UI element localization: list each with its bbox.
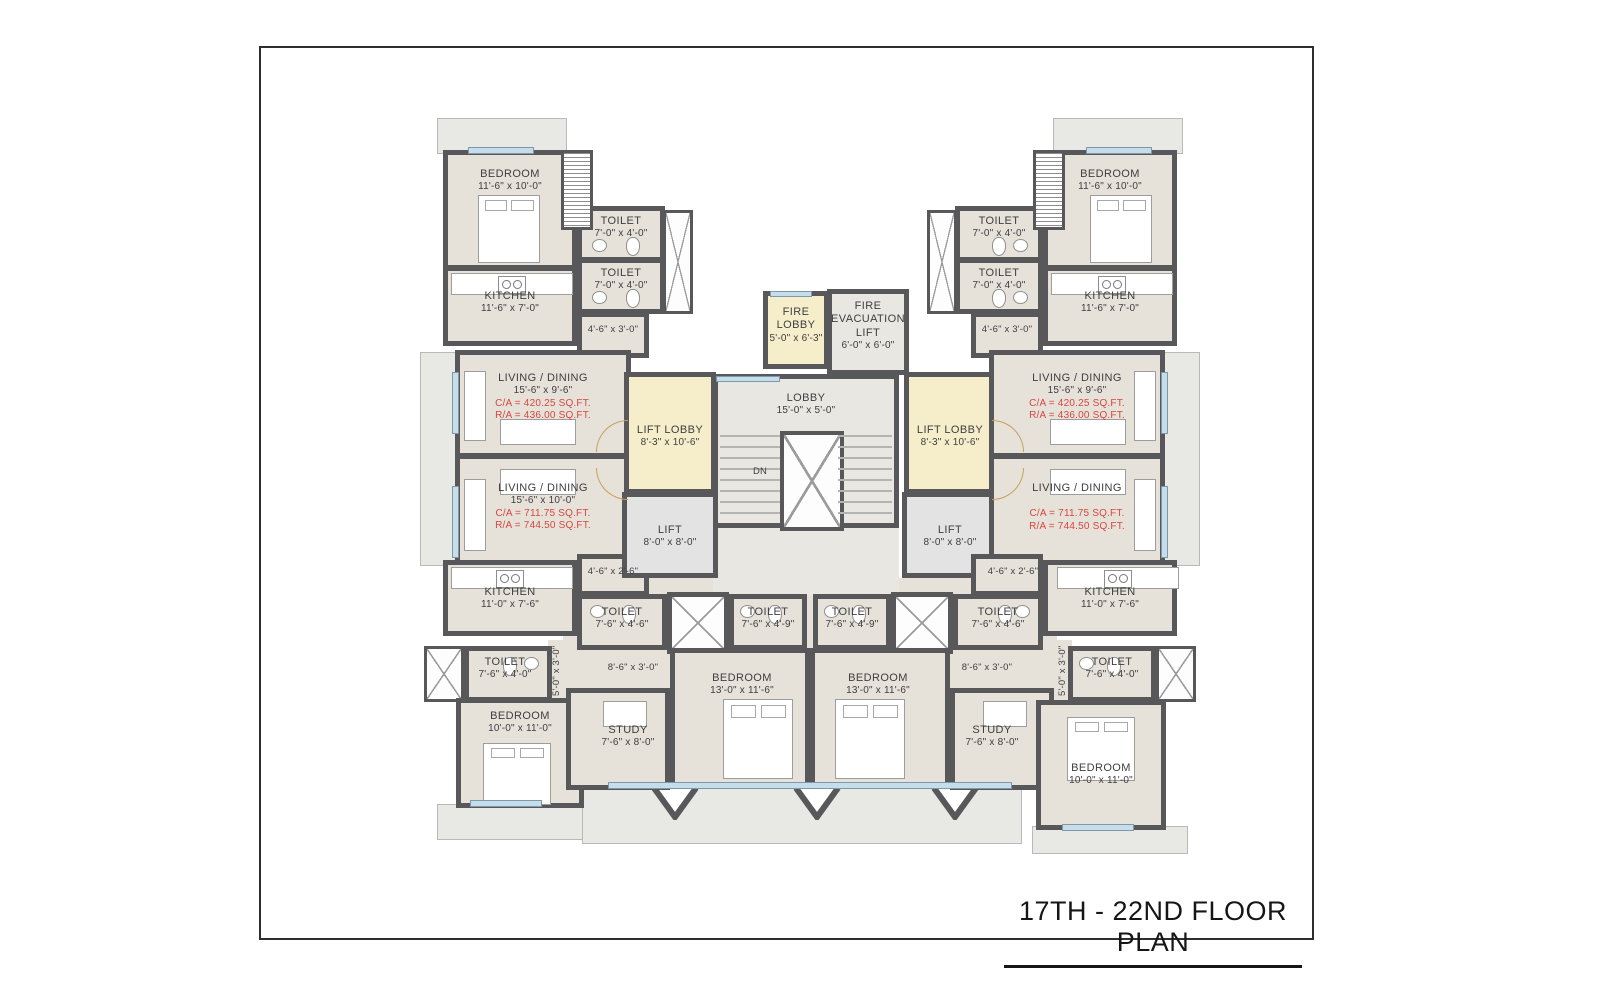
label-kitchen-bottom-left: KITCHEN 11'-0" x 7'-6" (443, 586, 577, 612)
label-bedroom-center-left: BEDROOM 13'-0" x 11'-6" (672, 672, 812, 698)
rera-area: R/A = 744.50 SQ.FT. (989, 521, 1165, 533)
room-dim: 7'-6" x 4'-9" (725, 619, 811, 631)
room-name: TOILET (577, 606, 667, 619)
room-dim: 8'-3" x 10'-6" (624, 437, 716, 449)
bed-icon (1090, 195, 1152, 263)
label-living-right-2: LIVING / DINING C/A = 711.75 SQ.FT. R/A … (989, 482, 1165, 533)
room-name: BEDROOM (456, 710, 584, 723)
room-name: TOILET (809, 606, 895, 619)
carpet-area: C/A = 711.75 SQ.FT. (455, 508, 631, 520)
stair-void-icon (780, 431, 844, 531)
label-toilet-center-left-1: TOILET 7'-6" x 4'-6" (577, 606, 667, 632)
label-kitchen-top-left: KITCHEN 11'-6" x 7'-0" (443, 290, 577, 316)
window-icon (1086, 147, 1152, 154)
label-toilet-center-right-1: TOILET 7'-6" x 4'-9" (809, 606, 895, 632)
room-name: KITCHEN (443, 290, 577, 303)
room-name: BEDROOM (808, 672, 948, 685)
label-study-right: STUDY 7'-6" x 8'-0" (940, 724, 1044, 750)
window-icon (1062, 824, 1134, 831)
stairs-direction: DN (742, 466, 778, 478)
bed-icon (483, 743, 551, 805)
label-passage-top-right: 4'-6" x 3'-0" (961, 324, 1053, 336)
balcony-pier-icon (651, 786, 699, 820)
spacer (989, 495, 1165, 508)
room-name: KITCHEN (1043, 586, 1177, 599)
room-dim: 7'-6" x 4'-0" (455, 669, 555, 681)
label-corridor-left: 8'-6" x 3'-0" (583, 662, 683, 674)
window-icon (608, 782, 1012, 789)
label-living-left-2: LIVING / DINING 15'-6" x 10'-0" C/A = 71… (455, 482, 631, 532)
room-dim: 7'-0" x 4'-0" (955, 228, 1043, 240)
room-name: LIVING / DINING (455, 372, 631, 385)
room-name: TOILET (577, 215, 665, 228)
room-name: LIVING / DINING (989, 482, 1165, 495)
label-toilet-center-right-2: TOILET 7'-6" x 4'-6" (953, 606, 1043, 632)
label-passage-vertical-left: 5'-0" x 3'-0" (551, 626, 563, 716)
stair-steps-icon (838, 435, 892, 521)
room-dim: 7'-6" x 4'-6" (577, 619, 667, 631)
label-lift-lobby-right: LIFT LOBBY 8'-3" x 10'-6" (904, 424, 996, 450)
room-dim: 7'-0" x 4'-0" (955, 280, 1043, 292)
room-name: TOILET (455, 656, 555, 669)
label-kitchen-bottom-right: KITCHEN 11'-0" x 7'-6" (1043, 586, 1177, 612)
room-name: LIVING / DINING (455, 482, 631, 495)
room-name: KITCHEN (443, 586, 577, 599)
room-name: LIFT LOBBY (904, 424, 996, 437)
table-icon (500, 419, 576, 445)
lobby-landing-floor (713, 524, 899, 596)
label-toilet-top-left-1: TOILET 7'-0" x 4'-0" (577, 215, 665, 241)
label-passage-left-2: 4'-6" x 2'-6" (567, 566, 659, 578)
room-dim: 11'-6" x 10'-0" (443, 181, 577, 193)
room-name: STUDY (940, 724, 1044, 737)
balcony-bottom-left (437, 804, 587, 840)
window-icon (716, 376, 780, 382)
room-name: KITCHEN (1043, 290, 1177, 303)
room-name: BEDROOM (1036, 762, 1166, 775)
bed-icon (835, 699, 905, 779)
floor-plan-page: BEDROOM 11'-6" x 10'-0" TOILET 7'-0" x 4… (0, 0, 1599, 981)
room-dim: 15'-6" x 9'-6" (989, 385, 1165, 397)
room-dim: 5'-0" x 6'-3" (763, 333, 829, 345)
plan-title-text: 17TH - 22ND FLOOR PLAN (1019, 896, 1287, 957)
room-dim: 11'-6" x 10'-0" (1043, 181, 1177, 193)
stair-steps-icon (720, 435, 780, 521)
room-name: LOBBY (713, 392, 899, 405)
room-name: TOILET (1062, 656, 1162, 669)
room-name: TOILET (955, 215, 1043, 228)
rera-area: R/A = 744.50 SQ.FT. (455, 520, 631, 532)
room-dim: 13'-0" x 11'-6" (808, 685, 948, 697)
balcony-pier-icon (931, 786, 979, 820)
label-kitchen-top-right: KITCHEN 11'-6" x 7'-0" (1043, 290, 1177, 316)
balcony-pier-icon (793, 786, 841, 820)
label-living-left-1: LIVING / DINING 15'-6" x 9'-6" C/A = 420… (455, 372, 631, 422)
room-dim: 7'-0" x 4'-0" (577, 280, 665, 292)
room-dim: 4'-6" x 3'-0" (961, 324, 1053, 336)
label-bedroom-top-right: BEDROOM 11'-6" x 10'-0" (1043, 168, 1177, 194)
room-bedroom-center-right (810, 648, 950, 788)
bed-icon (478, 195, 540, 263)
label-toilet-bottom-left: TOILET 7'-6" x 4'-0" (455, 656, 555, 682)
rera-area: R/A = 436.00 SQ.FT. (455, 410, 631, 422)
room-dim: 8'-6" x 3'-0" (583, 662, 683, 674)
bed-icon (723, 699, 793, 779)
label-bedroom-bottom-right: BEDROOM 10'-0" x 11'-0" (1036, 762, 1166, 788)
room-dim: 11'-0" x 7'-6" (443, 599, 577, 611)
room-dim: 8'-6" x 3'-0" (937, 662, 1037, 674)
room-dim: 5'-0" x 3'-0" (551, 626, 563, 716)
room-dim: 8'-0" x 8'-0" (622, 537, 718, 549)
room-dim: 7'-6" x 4'-6" (953, 619, 1043, 631)
label-living-right-1: LIVING / DINING 15'-6" x 9'-6" C/A = 420… (989, 372, 1165, 422)
label-lobby: LOBBY 15'-0" x 5'-0" (713, 392, 899, 418)
table-icon (1050, 419, 1126, 445)
room-dim: 7'-6" x 4'-9" (809, 619, 895, 631)
room-dim: 11'-0" x 7'-6" (1043, 599, 1177, 611)
room-dim: 7'-0" x 4'-0" (577, 228, 665, 240)
room-dim: 7'-6" x 4'-0" (1062, 669, 1162, 681)
room-dim: 15'-6" x 10'-0" (455, 495, 631, 507)
vent-shaft-icon (927, 210, 957, 314)
room-name: STUDY (576, 724, 680, 737)
label-toilet-top-right-1: TOILET 7'-0" x 4'-0" (955, 215, 1043, 241)
room-name: LIVING / DINING (989, 372, 1165, 385)
label-toilet-top-right-2: TOILET 7'-0" x 4'-0" (955, 267, 1043, 293)
label-lift-left: LIFT 8'-0" x 8'-0" (622, 524, 718, 550)
room-dim: 6'-0" x 6'-0" (829, 340, 907, 352)
label-toilet-center-left-2: TOILET 7'-6" x 4'-9" (725, 606, 811, 632)
room-name: BEDROOM (443, 168, 577, 181)
window-icon (770, 291, 812, 297)
room-name: BEDROOM (672, 672, 812, 685)
shaft-icon (667, 592, 729, 654)
carpet-area: C/A = 420.25 SQ.FT. (989, 398, 1165, 410)
room-dim: 8'-0" x 8'-0" (902, 537, 998, 549)
label-lift-right: LIFT 8'-0" x 8'-0" (902, 524, 998, 550)
room-dim: 11'-6" x 7'-0" (1043, 303, 1177, 315)
room-dim: 4'-6" x 2'-6" (967, 566, 1059, 578)
label-fire-lobby: FIRE LOBBY 5'-0" x 6'-3" (763, 306, 829, 345)
shaft-icon (1156, 646, 1196, 702)
room-bedroom-center-left (670, 648, 810, 788)
label-study-left: STUDY 7'-6" x 8'-0" (576, 724, 680, 750)
room-name: TOILET (577, 267, 665, 280)
balcony-right (1164, 352, 1200, 566)
label-passage-right-2: 4'-6" x 2'-6" (967, 566, 1059, 578)
carpet-area: C/A = 420.25 SQ.FT. (455, 398, 631, 410)
room-dim: 11'-6" x 7'-0" (443, 303, 577, 315)
room-dim: 15'-6" x 9'-6" (455, 385, 631, 397)
room-name: BEDROOM (1043, 168, 1177, 181)
plan-title: 17TH - 22ND FLOOR PLAN (1004, 896, 1302, 968)
carpet-area: C/A = 711.75 SQ.FT. (989, 508, 1165, 520)
room-name: FIRE LOBBY (763, 306, 829, 333)
label-bedroom-center-right: BEDROOM 13'-0" x 11'-6" (808, 672, 948, 698)
room-name: TOILET (953, 606, 1043, 619)
balcony-left (420, 352, 456, 566)
room-dim: 7'-6" x 8'-0" (940, 737, 1044, 749)
room-dim: 10'-0" x 11'-0" (1036, 775, 1166, 787)
room-name: FIRE EVACUATION LIFT (829, 300, 907, 340)
label-corridor-right: 8'-6" x 3'-0" (937, 662, 1037, 674)
label-lift-lobby-left: LIFT LOBBY 8'-3" x 10'-6" (624, 424, 716, 450)
label-passage-top-left: 4'-6" x 3'-0" (567, 324, 659, 336)
room-dim: 15'-0" x 5'-0" (713, 405, 899, 417)
room-dim: 8'-3" x 10'-6" (904, 437, 996, 449)
room-dim: 7'-6" x 8'-0" (576, 737, 680, 749)
room-name: LIFT (622, 524, 718, 537)
shaft-icon (891, 592, 953, 654)
room-name: TOILET (955, 267, 1043, 280)
room-dim: 13'-0" x 11'-6" (672, 685, 812, 697)
label-fire-evacuation-lift: FIRE EVACUATION LIFT 6'-0" x 6'-0" (829, 300, 907, 352)
room-name: LIFT LOBBY (624, 424, 716, 437)
window-icon (470, 800, 542, 807)
label-toilet-top-left-2: TOILET 7'-0" x 4'-0" (577, 267, 665, 293)
label-bedroom-bottom-left: BEDROOM 10'-0" x 11'-0" (456, 710, 584, 736)
room-name: LIFT (902, 524, 998, 537)
room-dim: 10'-0" x 11'-0" (456, 723, 584, 735)
room-dim: 4'-6" x 2'-6" (567, 566, 659, 578)
label-bedroom-top-left: BEDROOM 11'-6" x 10'-0" (443, 168, 577, 194)
vent-shaft-icon (663, 210, 693, 314)
room-name: TOILET (725, 606, 811, 619)
rera-area: R/A = 436.00 SQ.FT. (989, 410, 1165, 422)
room-dim: 4'-6" x 3'-0" (567, 324, 659, 336)
label-stairs-dn: DN (742, 466, 778, 478)
label-toilet-bottom-right: TOILET 7'-6" x 4'-0" (1062, 656, 1162, 682)
window-icon (468, 147, 534, 154)
